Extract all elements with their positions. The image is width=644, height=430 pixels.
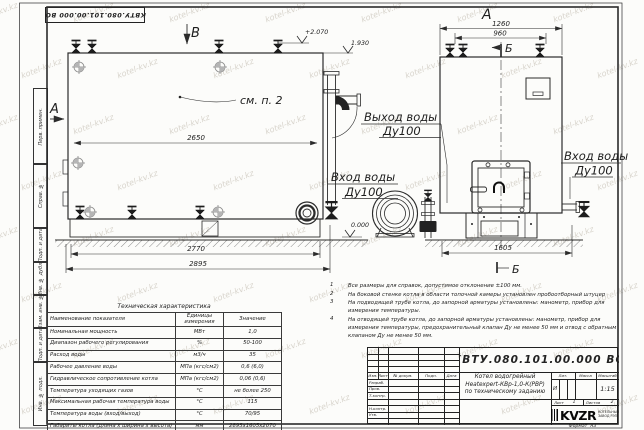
tb-lit-value: И [551, 379, 559, 399]
view-a-title: А [481, 7, 492, 23]
position-marker-icon [211, 205, 225, 219]
table-row: Номинальная мощностьМВт1,0 [48, 327, 282, 339]
table-row: Максимальная рабочая температура воды°С1… [48, 397, 282, 409]
tb-lit-label: Лит. [551, 372, 575, 379]
valve-icon [128, 207, 137, 220]
logo-subtitle: КОТЕЛЬНЫЙЗАВОД РЭП [598, 411, 619, 419]
tech-table: Наименование показателя Единицы измерени… [47, 312, 282, 430]
list-item: 2На боковой стенке котла в области топоч… [330, 291, 624, 299]
valve-icon [274, 41, 283, 54]
elevation-zero: 0.000 [351, 222, 369, 229]
svg-text:Вход воды: Вход воды [331, 170, 395, 184]
pipe-elbow [336, 96, 350, 110]
notes-list: 1Все размеры для справок, допустимое отк… [330, 282, 624, 341]
tb-utv-label: Утв. [369, 412, 388, 419]
furnace-door [471, 161, 531, 213]
table-row: Диапазон рабочего регулирования%50-100 [48, 338, 282, 350]
dim-2770: 2770 [187, 245, 205, 253]
valve-icon [536, 45, 545, 58]
valve-icon [446, 45, 455, 58]
svg-text:Ду100: Ду100 [574, 164, 613, 178]
tb-scale-value: 1:15 [596, 379, 619, 399]
tech-table-title: Техническая характеристика [47, 303, 281, 310]
dim-960: 960 [493, 30, 507, 38]
outlet-pipe-assembly [420, 190, 437, 238]
drawing-sheet: kotel-kv.kzkotel-kv.kzkotel-kv.kzkotel-k… [0, 0, 644, 430]
list-item: 4На отводящей трубе котла, до запорной а… [330, 316, 624, 340]
valve-icon [459, 45, 468, 58]
logo-stripes-icon [551, 409, 558, 421]
dim-1260: 1260 [492, 20, 510, 28]
tb-scale-label: Масштаб [596, 372, 619, 379]
tech-header-value: Значение [224, 313, 282, 327]
dim-2895: 2895 [189, 260, 207, 268]
tech-header-units: Единицы измерения [176, 313, 224, 327]
front-view: А 1260 960 Б [440, 7, 628, 276]
title-block: Изм. Лист № докум. Подп. Дата Разраб. Пр… [367, 347, 618, 424]
dim-2650: 2650 [187, 134, 205, 142]
tb-docnum-label: № докум. [388, 372, 418, 379]
svg-text:Выход воды: Выход воды [364, 110, 437, 124]
position-marker-icon [72, 60, 86, 74]
valve-icon [215, 41, 224, 54]
tb-doc-number: КВТУ.080.101.00.000 ВО [459, 348, 619, 372]
format-label: Формат А3 [545, 424, 620, 429]
inlet-valve-icon [579, 202, 590, 217]
table-row: Температура воды (вход/выход)°С70/95 [48, 409, 282, 421]
table-row: Температура уходящих газов°Сне более 250 [48, 385, 282, 397]
side-view-dims: 2770 2895 [66, 225, 330, 273]
door-latch [471, 187, 487, 192]
tb-tkontr-label: Т.контр. [369, 392, 388, 399]
tb-mass-label: Масса [575, 372, 596, 379]
section-b-top: Б [505, 42, 513, 55]
svg-text:Вход воды: Вход воды [564, 149, 628, 163]
see-note-label: см. п. 2 [240, 94, 283, 107]
tb-doc-name: Котел водогрейный Heatexpert-КВр-1,0-К(Р… [459, 372, 551, 399]
svg-text:Ду100: Ду100 [344, 185, 383, 199]
tb-data-label: Дата [444, 372, 459, 379]
position-marker-icon [71, 156, 85, 170]
table-row: Расход водым3/ч35 [48, 350, 282, 362]
table-row: Габариты котла (длина х ширина х высота)… [48, 421, 282, 430]
list-item: 1Все размеры для справок, допустимое отк… [330, 282, 624, 290]
tb-podp-label: Подп. [418, 372, 444, 379]
tech-header-name: Наименование показателя [48, 313, 176, 327]
section-b-bottom: Б [512, 263, 520, 276]
valve-icon [196, 207, 205, 220]
tech-header-row: Наименование показателя Единицы измерени… [48, 313, 282, 327]
table-row: Гидравлическое сопротивление котлаМПа (к… [48, 374, 282, 386]
position-marker-icon [83, 205, 97, 219]
ground-hatch [55, 241, 368, 248]
list-item: 3На подводящей трубе котла, до запорной … [330, 299, 624, 315]
table-row: Рабочее давление водыМПа (кгс/см2)0,6 (6… [48, 362, 282, 374]
valve-icon [88, 41, 97, 54]
inlet-label-left: Вход воды Ду100 [328, 170, 398, 199]
dim-1605: 1605 [494, 244, 512, 252]
view-a-arrow-label: А [49, 102, 59, 117]
valve-icon [76, 207, 85, 220]
valve-icon [72, 41, 81, 54]
side-view: 2650 [63, 41, 361, 238]
tb-list-label: Лист [378, 372, 388, 379]
view-b-label: В [191, 26, 200, 41]
position-marker-icon [213, 60, 227, 74]
svg-text:Ду100: Ду100 [382, 124, 421, 138]
kvzr-logo: KVZR КОТЕЛЬНЫЙЗАВОД РЭП [551, 405, 619, 425]
door-handle [494, 183, 504, 194]
elevation-mid: 1.930 [351, 40, 369, 47]
tb-izm-label: Изм. [368, 372, 378, 379]
elevation-top: +2.070 [305, 29, 328, 36]
